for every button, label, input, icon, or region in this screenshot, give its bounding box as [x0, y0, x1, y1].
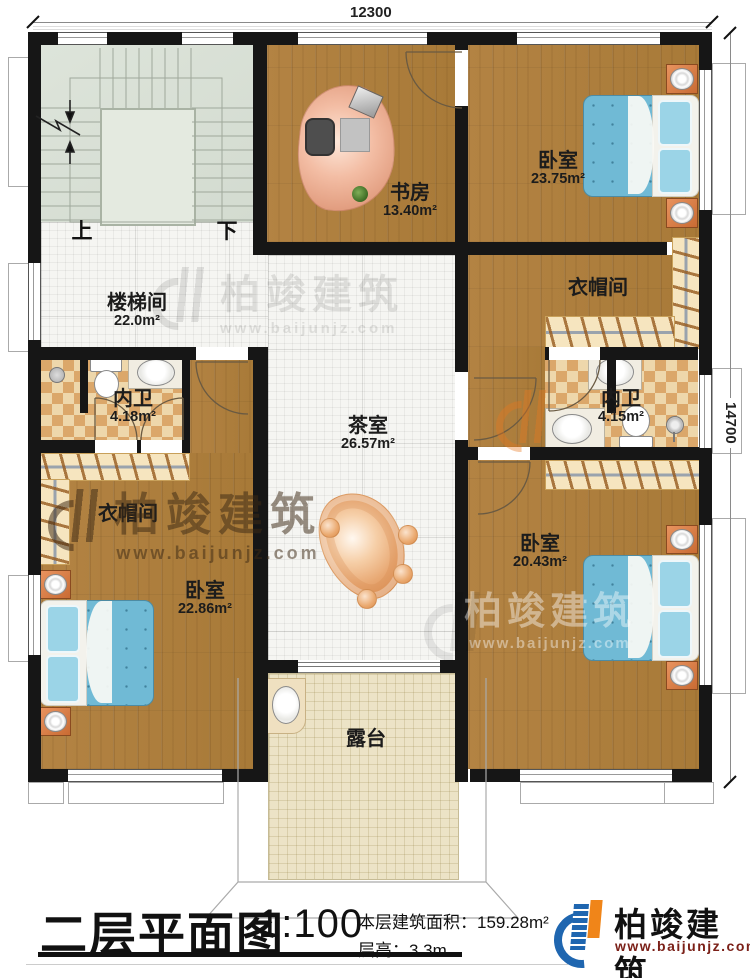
title-grey-line: [26, 964, 568, 965]
door-gap-corridor-e: [455, 372, 468, 440]
wall-terrace-east: [455, 660, 468, 782]
blanket-fold: [86, 601, 112, 703]
room-label-study: 书房13.40m²: [383, 182, 437, 220]
desk-keyboard-pad: [340, 118, 370, 152]
wardrobe-east-right: [672, 237, 700, 349]
window: [182, 32, 233, 45]
wardrobe-sw-left: [40, 479, 70, 565]
lamp-icon: [44, 574, 67, 595]
wall-stair-study: [253, 45, 267, 242]
top-guide-line-2: [33, 29, 712, 30]
wall-bathw-south-b: [137, 440, 141, 453]
desk-plant-icon: [352, 186, 368, 202]
top-guide-line-1: [33, 26, 712, 27]
floor-area-text: 本层建筑面积：159.28m²: [358, 908, 549, 933]
window: [699, 525, 712, 685]
pouf: [398, 525, 418, 545]
nightstand: [40, 570, 71, 599]
wardrobe-se-top: [545, 460, 700, 490]
company-website: www.baijunjz.com: [615, 938, 750, 954]
sill-bottom-left: [68, 782, 224, 804]
shower-head-icon: [666, 416, 684, 434]
floor-drain-icon: [49, 367, 65, 383]
wardrobe-east-bottom: [545, 316, 675, 349]
pillow: [658, 148, 692, 194]
wall-bathw-south-a: [28, 440, 95, 453]
office-chair: [305, 118, 335, 156]
sill-right-top: [712, 63, 746, 215]
lamp-icon: [44, 711, 67, 732]
wall-hall-bathw: [182, 358, 190, 453]
partition-bathw: [80, 358, 88, 413]
title-block: 二层平面图 1:100 本层建筑面积：159.28m² 层高：3.3m 柏竣建筑…: [0, 890, 750, 978]
room-label-bath-e: 内卫4.15m²: [598, 388, 644, 426]
nightstand: [666, 198, 698, 228]
window: [699, 70, 712, 210]
pillow: [658, 560, 692, 608]
pouf: [357, 589, 377, 609]
nightstand: [40, 707, 71, 736]
plan-scale: 1:100: [258, 902, 363, 947]
room-label-tearoom: 茶室26.57m²: [341, 415, 395, 453]
window: [298, 32, 427, 45]
lamp-icon: [670, 529, 694, 550]
door-gap-study: [455, 50, 468, 106]
sink-icon: [552, 414, 592, 444]
terrace-sink-icon: [272, 686, 300, 724]
stair-landing: [100, 108, 196, 226]
stair-up-label: 上: [72, 215, 93, 245]
window: [699, 375, 712, 448]
lamp-icon: [670, 665, 694, 686]
lamp-icon: [670, 202, 694, 224]
window: [68, 769, 222, 782]
pillow: [46, 655, 80, 703]
room-label-terrace: 露台: [346, 728, 386, 750]
sill-right-low: [712, 518, 746, 694]
lamp-icon: [670, 68, 694, 90]
nightstand: [666, 525, 698, 554]
hall-w-floor: [190, 360, 253, 460]
wall-corridor-south-w: [28, 347, 196, 360]
corridor-e-floor: [468, 347, 545, 447]
sill-corner-bl: [28, 782, 64, 804]
nightstand: [666, 661, 698, 690]
pouf: [393, 564, 413, 584]
wardrobe-sw-top: [40, 453, 190, 481]
top-dimension-line: [33, 22, 712, 23]
wall-left: [28, 32, 41, 782]
room-label-bedroom-sw: 卧室22.86m²: [178, 580, 232, 618]
pillow: [46, 605, 80, 653]
door-gap-bathe: [549, 347, 600, 360]
room-label-stairwell: 楼梯间22.0m²: [107, 292, 167, 330]
nightstand: [666, 64, 698, 94]
pillow: [658, 610, 692, 658]
room-label-bedroom-ne: 卧室23.75m²: [531, 150, 585, 188]
window: [58, 32, 107, 45]
floor-plan: 12300 14700: [0, 0, 750, 978]
stair-down-label: 下: [217, 215, 238, 245]
wall-study-south: [253, 242, 470, 255]
company-logo: 柏竣建筑 www.baijunjz.com: [552, 898, 750, 968]
sink-icon: [137, 359, 175, 386]
floor-height-text: 层高：3.3m: [358, 936, 447, 961]
pouf: [320, 518, 340, 538]
title-underline: [38, 952, 462, 957]
room-label-bedroom-se: 卧室20.43m²: [513, 533, 567, 571]
right-dimension-label: 14700: [722, 398, 739, 448]
window: [517, 32, 660, 45]
room-label-cloakroom-e: 衣帽间: [568, 277, 628, 299]
top-dimension-label: 12300: [346, 4, 396, 21]
wall-tearoom-south-a: [268, 660, 298, 673]
sliding-door-terrace: [298, 662, 440, 673]
room-label-cloakroom-w: 衣帽间: [98, 503, 158, 525]
room-label-bath-w: 内卫4.18m²: [110, 388, 156, 426]
sill-corner-br: [664, 782, 714, 804]
wall-tearoom-west: [253, 347, 268, 782]
sill-bottom-right: [520, 782, 674, 804]
wall-bedroomne-south: [455, 242, 667, 255]
window: [28, 575, 41, 655]
pillow: [658, 100, 692, 146]
window: [28, 263, 41, 340]
door-gap-bedroomse: [478, 447, 530, 460]
window: [520, 769, 672, 782]
wall-tearoom-east: [455, 255, 468, 660]
door-gap-hall-w: [196, 347, 248, 360]
